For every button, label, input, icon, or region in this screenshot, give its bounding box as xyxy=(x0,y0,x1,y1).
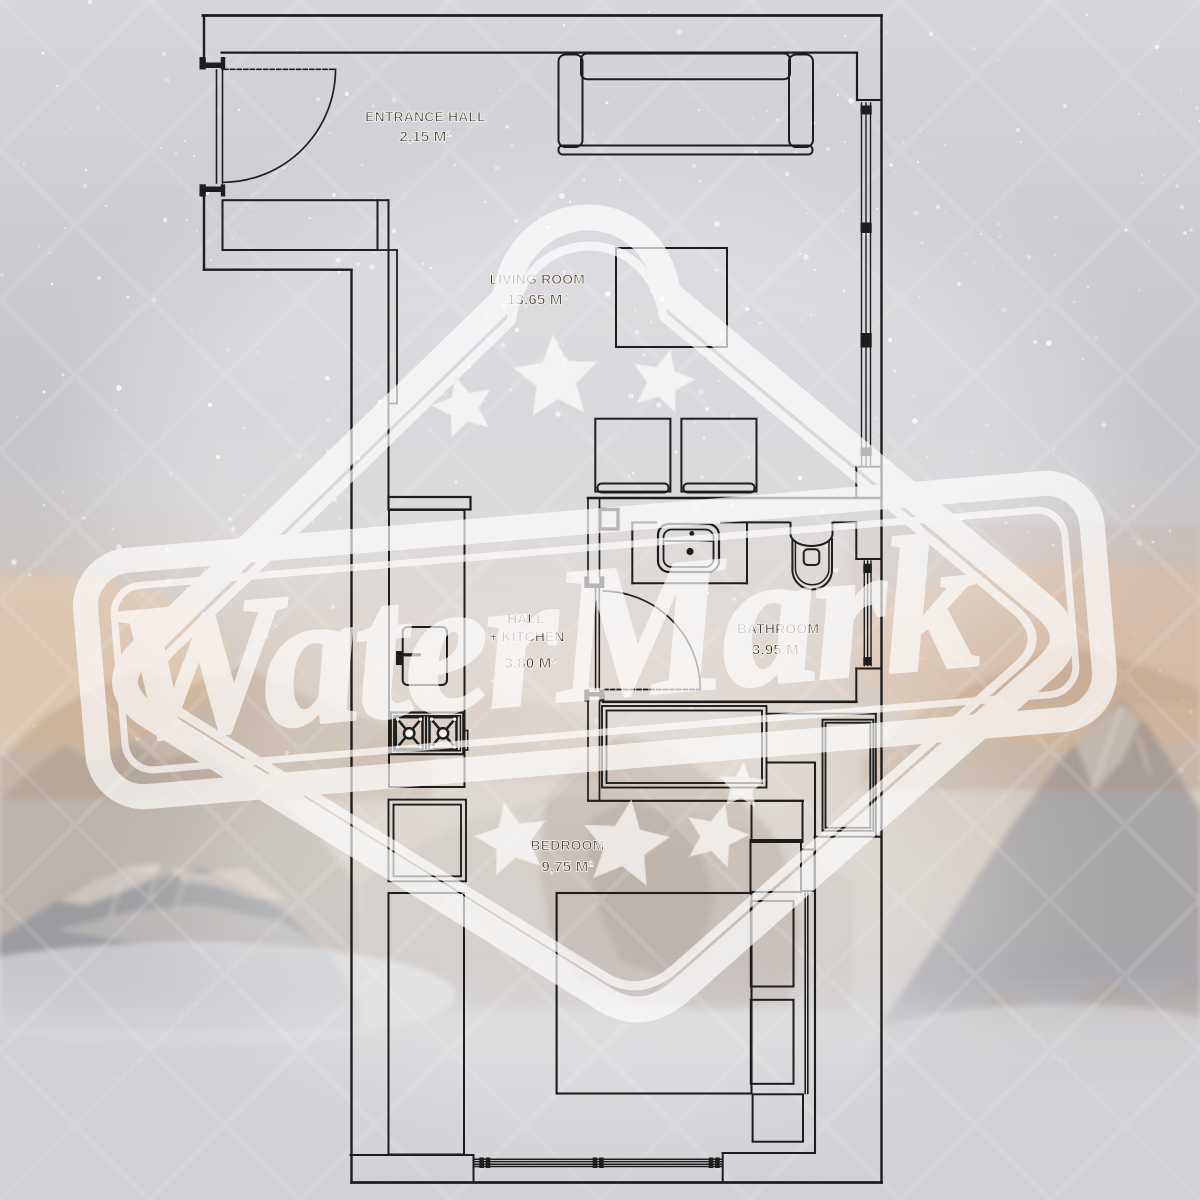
svg-text:2,15 M²: 2,15 M² xyxy=(399,129,451,146)
svg-text:ENTRANCE HALL: ENTRANCE HALL xyxy=(365,109,486,125)
svg-text:BEDROOM: BEDROOM xyxy=(531,837,605,853)
svg-text:9,75 M²: 9,75 M² xyxy=(541,859,593,876)
